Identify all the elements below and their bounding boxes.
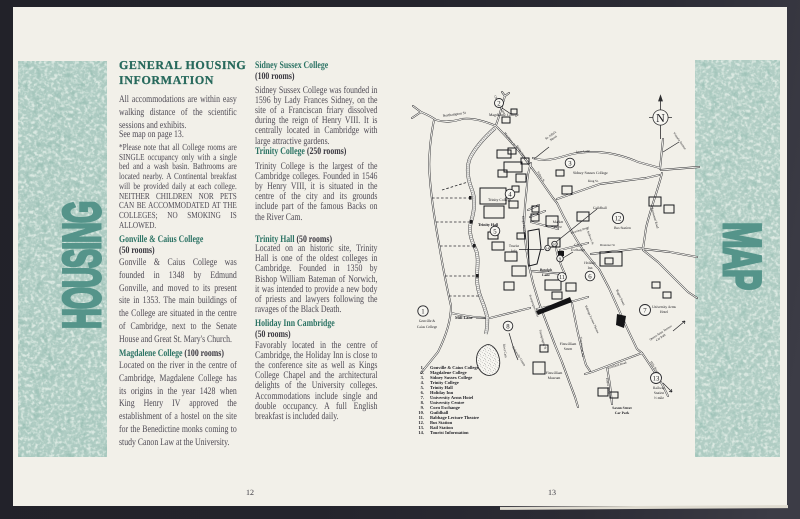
svg-text:Caius College: Caius College <box>417 325 438 329</box>
svg-text:11: 11 <box>559 275 565 281</box>
svg-text:4: 4 <box>508 191 512 198</box>
svg-text:Street: Street <box>564 347 572 351</box>
svg-text:Guildhall: Guildhall <box>593 206 607 210</box>
svg-text:Place: Place <box>554 225 562 229</box>
svg-text:Railway: Railway <box>653 386 665 390</box>
svg-text:Lane: Lane <box>542 273 550 277</box>
svg-text:Babbage Lecture Theatre: Babbage Lecture Theatre <box>584 305 600 335</box>
svg-text:River Cam: River Cam <box>502 344 508 359</box>
svg-text:University Arms: University Arms <box>652 305 676 309</box>
svg-text:13: 13 <box>653 375 660 382</box>
svg-text:Car Park: Car Park <box>615 411 629 415</box>
svg-text:1: 1 <box>421 308 424 315</box>
svg-text:Market: Market <box>553 220 563 224</box>
svg-text:14: 14 <box>546 246 550 250</box>
svg-text:12: 12 <box>615 215 622 222</box>
svg-text:Magdalene St: Magdalene St <box>503 131 516 147</box>
svg-text:Magdalene College: Magdalene College <box>489 113 519 117</box>
svg-text:Sidney Sussex College: Sidney Sussex College <box>573 171 608 175</box>
svg-text:Drummer St: Drummer St <box>600 243 615 247</box>
svg-text:5: 5 <box>493 228 497 235</box>
svg-text:Tourist Information: Tourist Information <box>430 430 469 435</box>
svg-text:2: 2 <box>497 100 501 107</box>
svg-text:Emmanuel Road: Emmanuel Road <box>650 207 660 229</box>
svg-text:Bus Station: Bus Station <box>614 226 631 230</box>
svg-text:Holiday: Holiday <box>584 261 596 265</box>
svg-text:14.: 14. <box>418 430 424 435</box>
svg-text:10: 10 <box>553 242 557 246</box>
svg-text:N: N <box>656 111 665 125</box>
svg-text:Info: Info <box>511 249 517 253</box>
svg-text:3: 3 <box>568 160 572 167</box>
svg-text:Trumpington St: Trumpington St <box>538 329 547 350</box>
svg-text:½ mile: ½ mile <box>654 396 664 400</box>
svg-text:Northampton St: Northampton St <box>443 111 466 118</box>
svg-text:Fitzwilliam: Fitzwilliam <box>546 371 563 375</box>
svg-text:Botolph: Botolph <box>540 268 552 272</box>
svg-text:Saxon Street: Saxon Street <box>612 406 632 410</box>
svg-text:Station: Station <box>654 391 664 395</box>
svg-text:Corn: Corn <box>574 243 581 247</box>
svg-text:King's Parade: King's Parade <box>521 216 527 235</box>
svg-text:7: 7 <box>643 307 647 314</box>
svg-text:Mill Lane: Mill Lane <box>455 315 473 320</box>
svg-text:Fitzwilliam: Fitzwilliam <box>560 342 577 346</box>
svg-text:8: 8 <box>506 323 510 330</box>
svg-text:6: 6 <box>588 273 592 280</box>
svg-text:Jesus Lane: Jesus Lane <box>576 149 591 154</box>
svg-text:Inn: Inn <box>588 266 593 270</box>
svg-text:Victoria Avenue: Victoria Avenue <box>672 131 687 151</box>
svg-text:Exchange: Exchange <box>571 248 586 252</box>
svg-text:Panton Street: Panton Street <box>605 377 612 394</box>
svg-text:King St.: King St. <box>588 179 599 183</box>
svg-text:Tennis Court Rd: Tennis Court Rd <box>579 337 585 358</box>
svg-text:Tourist: Tourist <box>509 244 519 248</box>
svg-text:Museum: Museum <box>548 376 561 380</box>
svg-text:Bridge Street: Bridge Street <box>515 144 527 159</box>
svg-text:Gonville &: Gonville & <box>419 319 435 323</box>
svg-text:Hotel: Hotel <box>660 310 668 314</box>
svg-text:University Centre: University Centre <box>511 345 527 367</box>
